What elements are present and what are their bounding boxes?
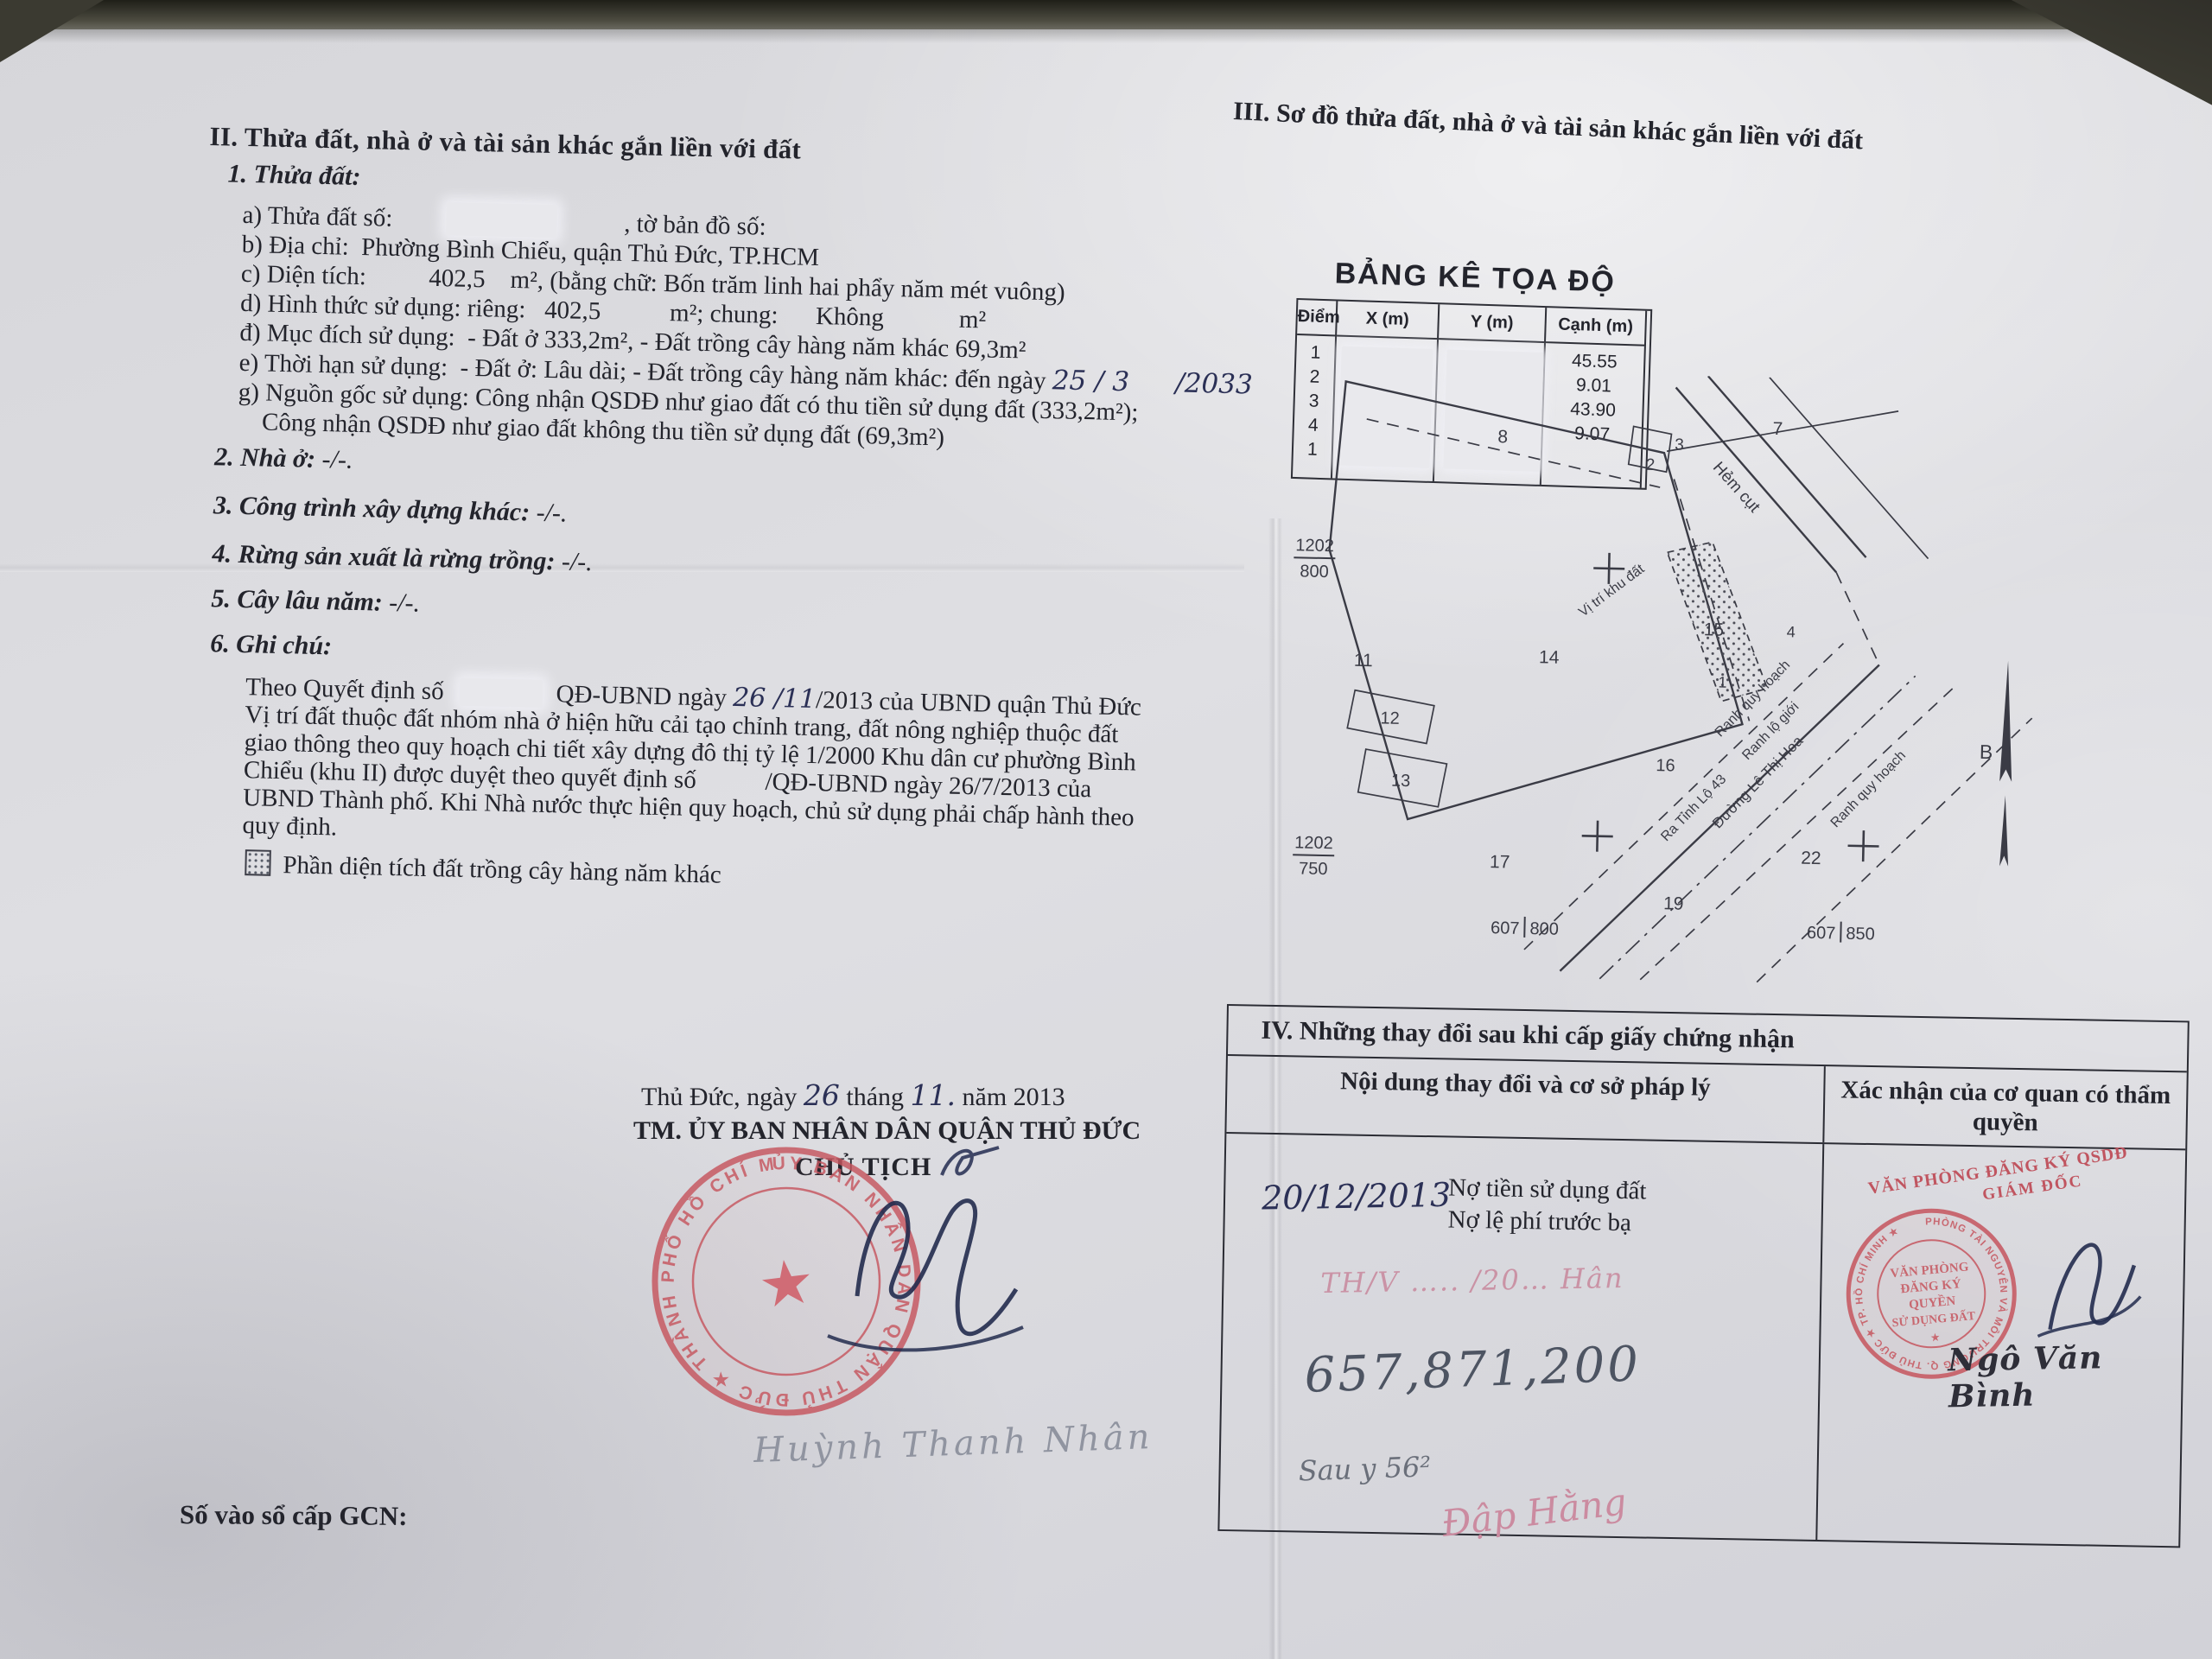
- svg-text:1202: 1202: [1295, 536, 1334, 556]
- registry-stamp-star-icon: ★: [1929, 1331, 1941, 1344]
- col-header-authority-confirm: Xác nhận của cơ quan có thẩm quyền: [1824, 1066, 2186, 1148]
- paper-edge-shadow: [0, 29, 2212, 43]
- handwritten-term-year: /2033: [1175, 367, 1253, 400]
- plot-number-17: 17: [1490, 852, 1510, 872]
- parcel-lines: a) Thửa đất số:, tờ bản đồ số: b) Địa ch…: [238, 198, 1280, 460]
- plot-number-14: 14: [1539, 647, 1560, 667]
- changes-table-body: 20/12/2013 Nợ tiền sử dụng đất Nợ lệ phí…: [1219, 1134, 2185, 1546]
- plot-number-11: 11: [1354, 651, 1373, 671]
- svg-text:607: 607: [1807, 924, 1836, 944]
- site-location-label: Vị trí khu đất: [1576, 562, 1648, 620]
- secondary-arrow-icon: [1999, 795, 2010, 866]
- handwritten-entry-date: 20/12/2013: [1262, 1176, 1452, 1217]
- grid-coordinate-1202-800: 1202 800: [1294, 536, 1336, 582]
- planning-boundary-label-2: Ranh quy hoạch: [1828, 748, 1909, 830]
- certificate-book-number-label: Số vào sổ cấp GCN:: [180, 1499, 408, 1532]
- handwritten-day: 26: [804, 1078, 840, 1112]
- grid-coordinate-1202-750: 1202 750: [1293, 833, 1335, 879]
- notes-paragraph: Theo Quyết định sốQĐ-UBND ngày 26 /11/20…: [242, 673, 1268, 862]
- change-content-cell: 20/12/2013 Nợ tiền sử dụng đất Nợ lệ phí…: [1219, 1134, 1824, 1540]
- director-signature: [2015, 1191, 2156, 1357]
- alley-line-1: [1672, 387, 1840, 572]
- col-header-x: X (m): [1337, 301, 1440, 340]
- plot-number-19: 19: [1663, 893, 1684, 913]
- handwritten-reference: TH/V ….. /20… Hân: [1320, 1262, 1624, 1300]
- svg-text:850: 850: [1846, 925, 1875, 944]
- col-header-point: Điểm: [1297, 300, 1338, 336]
- cadastral-sketch: 1202 800 1202 750 607 800 607 850 8 2 3 …: [1273, 367, 2133, 994]
- background-table-edge: [0, 0, 2212, 29]
- grid-coordinate-607-800: 607 800: [1491, 916, 1559, 939]
- grid-cross-3: [1847, 830, 1879, 862]
- plot-number-3: 3: [1675, 435, 1684, 454]
- redaction-box-decision-number: [459, 678, 543, 708]
- plot-number-16: 16: [1656, 756, 1675, 775]
- chairman-signature: [804, 1158, 1046, 1374]
- director-name: Ngô Văn Bình: [1948, 1338, 2182, 1415]
- signing-date-line: Thủ Đức, ngày 26 tháng 11. năm 2013: [641, 1078, 1065, 1112]
- redaction-box-parcel-number: [446, 202, 557, 238]
- handwritten-month: 11.: [911, 1078, 956, 1112]
- inner-dashed-line: [1365, 419, 1661, 487]
- item-notes: 6. Ghi chú:: [210, 629, 1269, 683]
- vertex-4: 4: [1787, 623, 1796, 640]
- plot-number-12: 12: [1380, 709, 1400, 728]
- handwritten-term-date: 25 / 3: [1052, 365, 1129, 397]
- plot-number-15: 15: [1704, 620, 1725, 639]
- debt-lines: Nợ tiền sử dụng đất Nợ lệ phí trước bạ: [1447, 1173, 1646, 1240]
- item-perennial: 5. Cây lâu năm: -/-.: [211, 584, 1270, 638]
- grid-cross-2: [1581, 820, 1613, 852]
- plot-number-2: 2: [1645, 456, 1655, 474]
- changes-table: IV. Những thay đổi sau khi cấp giấy chứn…: [1217, 1004, 2189, 1548]
- handwritten-decision-date: 26 /11: [733, 683, 817, 715]
- alley-line-3: [1766, 378, 1932, 559]
- svg-text:607: 607: [1491, 918, 1520, 938]
- section-ii-block: II. Thửa đất, nhà ở và tài sản khác gắn …: [193, 121, 1281, 902]
- to-provincial-road-label: Ra Tỉnh Lộ 43: [1658, 772, 1729, 844]
- north-arrow-icon: [1999, 660, 2014, 781]
- col-header-y: Y (m): [1439, 304, 1547, 343]
- dotted-area-legend-icon: [245, 849, 271, 876]
- col-header-edge: Cạnh (m): [1546, 308, 1647, 346]
- plot-number-13: 13: [1391, 772, 1411, 791]
- vertex-1: 1: [1718, 674, 1726, 691]
- road-boundary-dashed-2: [1640, 682, 1953, 986]
- col-header-change-content: Nội dung thay đổi và cơ sở pháp lý: [1226, 1056, 1825, 1142]
- handwritten-amount: 657,871,200: [1304, 1336, 1642, 1404]
- plot-number-7: 7: [1772, 419, 1783, 439]
- svg-text:1202: 1202: [1294, 833, 1333, 853]
- road-boundary-dashed-1: [1524, 637, 1844, 957]
- svg-text:750: 750: [1299, 859, 1328, 879]
- handwritten-note: Sau y 56²: [1298, 1450, 1432, 1487]
- photo-of-land-certificate: II. Thửa đất, nhà ở và tài sản khác gắn …: [0, 0, 2212, 1659]
- alley-label: Hẻm cụt: [1709, 459, 1764, 517]
- plot-number-8: 8: [1497, 427, 1508, 447]
- item-other-construction: 3. Công trình xây dựng khác: -/-.: [213, 491, 1273, 544]
- grid-coordinate-607-850: 607 850: [1807, 921, 1875, 944]
- north-label: B: [1980, 741, 1993, 763]
- svg-text:800: 800: [1529, 919, 1559, 939]
- alley-road-connector: [1834, 572, 1881, 664]
- plot-number-22: 22: [1801, 849, 1821, 868]
- svg-text:800: 800: [1300, 562, 1329, 582]
- authority-confirm-cell: VĂN PHÒNG ĐĂNG KÝ QSDĐ GIÁM ĐỐC PHÒNG TÀ…: [1817, 1144, 2185, 1546]
- item-forest: 4. Rừng sản xuất là rừng trồng: -/-.: [212, 539, 1271, 593]
